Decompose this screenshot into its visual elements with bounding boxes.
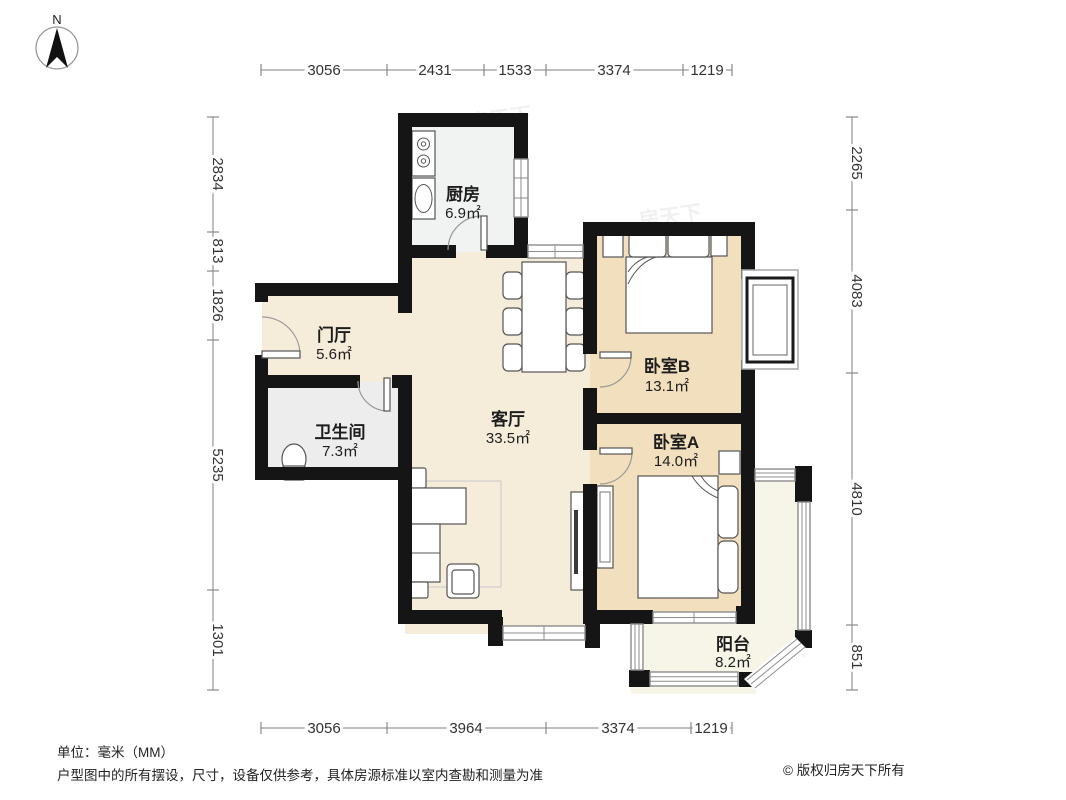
- pillow: [718, 486, 738, 538]
- dim-top-1: 3056: [307, 62, 340, 79]
- bedroom-b-area: 13.1㎡: [645, 378, 689, 395]
- dim-right-4: 851: [848, 644, 865, 669]
- living-label: 客厅: [490, 409, 525, 429]
- wall-segment: [597, 413, 741, 424]
- dim-bottom-3: 3374: [601, 720, 634, 737]
- compass: N: [36, 12, 78, 69]
- window-post: [488, 617, 503, 646]
- window-post: [795, 466, 812, 502]
- pillow: [668, 233, 709, 257]
- wardrobe: [597, 486, 613, 568]
- wall-segment: [268, 375, 360, 388]
- dim-left-5: 1301: [209, 623, 226, 656]
- living-top-window: [528, 245, 583, 258]
- dim-bottom-2: 3964: [449, 720, 482, 737]
- dim-top-3: 1533: [498, 62, 531, 79]
- balcony-label: 阳台: [716, 634, 750, 654]
- balcony-area: 8.2㎡: [715, 654, 751, 671]
- balcony-top-window: [755, 469, 795, 481]
- floorplan-svg: N 房天下 房天下 房天下: [0, 0, 1066, 800]
- bedroom-a-balcony-window: [653, 612, 736, 623]
- armchair-seat: [452, 570, 474, 594]
- wall-segment: [486, 245, 528, 258]
- living-bottom-window: [503, 626, 585, 640]
- dim-left-1: 2834: [209, 157, 226, 190]
- dim-left-3: 1826: [209, 288, 226, 321]
- dimension-right: 2265 4083 4810 851: [846, 117, 865, 690]
- dimension-bottom: 3056 3964 3374 1219: [261, 720, 732, 737]
- wall-segment: [255, 467, 412, 480]
- stove: [412, 131, 435, 176]
- nightstand: [603, 234, 623, 257]
- wall-segment: [255, 283, 412, 296]
- dimension-left: 2834 813 1826 5235 1301: [207, 117, 226, 690]
- wall-segment: [583, 388, 597, 450]
- dim-right-2: 4083: [848, 274, 865, 307]
- bathroom-area: 7.3㎡: [322, 443, 358, 460]
- wall-segment: [583, 484, 597, 624]
- pillow: [718, 541, 738, 593]
- dim-bottom-4: 1219: [694, 720, 727, 737]
- disclaimer-note: 户型图中的所有摆设，尺寸，设备仅供参考，具体房源标准以室内查勘和测量为准: [57, 767, 543, 783]
- pillow: [629, 233, 666, 257]
- wall-segment: [255, 283, 268, 302]
- wall-segment: [583, 610, 653, 624]
- dimension-top: 3056 2431 1533 3374 1219: [261, 62, 732, 79]
- balcony-right-window: [798, 502, 810, 630]
- kitchen-area: 6.9㎡: [445, 205, 481, 222]
- copyright-note: © 版权归房天下所有: [783, 762, 905, 778]
- floorplan-page: N 房天下 房天下 房天下: [0, 0, 1066, 800]
- wall-segment: [398, 375, 412, 480]
- wall-segment: [398, 467, 412, 623]
- wall-segment: [255, 355, 268, 480]
- north-arrow-icon: [46, 28, 68, 68]
- foyer-area: 5.6㎡: [316, 346, 352, 363]
- balcony-left-window: [631, 624, 643, 670]
- wall-segment: [398, 113, 528, 127]
- dim-right-1: 2265: [848, 146, 865, 179]
- dim-left-4: 5235: [209, 448, 226, 481]
- bathroom-label: 卫生间: [315, 422, 366, 442]
- dim-right-3: 4810: [848, 482, 865, 515]
- bedroom-a-area: 14.0㎡: [654, 453, 698, 470]
- dim-bottom-1: 3056: [307, 720, 340, 737]
- dining-table: [503, 262, 585, 372]
- kitchen-label: 厨房: [446, 184, 480, 204]
- dim-top-5: 1219: [690, 62, 723, 79]
- dim-top-2: 2431: [418, 62, 451, 79]
- wall-segment: [583, 222, 755, 236]
- wall-segment: [583, 222, 597, 354]
- footer: 单位：毫米（MM） 户型图中的所有摆设，尺寸，设备仅供参考，具体房源标准以室内查…: [57, 744, 905, 783]
- wall-segment: [741, 360, 755, 622]
- bedroom-a-label: 卧室A: [653, 432, 699, 452]
- balcony-bottom-window: [650, 672, 738, 686]
- bedroom-b-label: 卧室B: [644, 356, 690, 376]
- window-post: [629, 670, 650, 687]
- nightstand: [719, 451, 740, 474]
- room-floors: [262, 120, 810, 694]
- kitchen-sink: [412, 178, 435, 219]
- unit-note: 单位：毫米（MM）: [57, 744, 174, 760]
- compass-north-label: N: [52, 12, 61, 27]
- window-post: [736, 606, 755, 624]
- bay-window: [742, 270, 798, 369]
- dim-top-4: 3374: [597, 62, 630, 79]
- kitchen-window: [514, 159, 528, 217]
- wall-segment: [398, 610, 502, 624]
- living-area: 33.5㎡: [486, 430, 530, 447]
- dim-left-2: 813: [209, 238, 226, 263]
- wall-segment: [398, 245, 456, 258]
- wall-segment: [514, 113, 528, 159]
- foyer-label: 门厅: [317, 325, 351, 345]
- nightstand: [711, 234, 727, 256]
